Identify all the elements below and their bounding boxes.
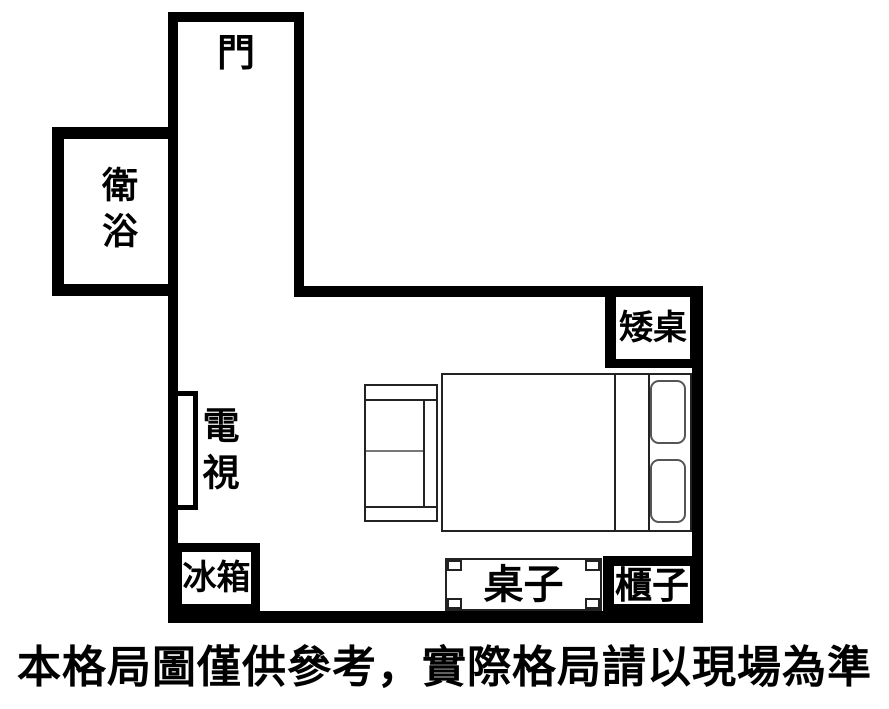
bed [441,373,692,532]
bathroom-room: 衛浴 [64,139,168,284]
sofa-cushion-divider [366,450,423,452]
tv [178,391,198,510]
bed-head-line-1 [614,375,616,530]
sofa [364,384,438,522]
door-label: 門 [178,34,294,72]
low-table-label: 矮桌 [619,311,687,345]
pillow-bottom [650,459,686,523]
wall-corridor-right [294,12,304,297]
table-leg-bottom-right [585,598,600,609]
pillow-top [650,380,686,444]
wall-bathroom-top [52,127,178,139]
floor-plan: 門 衛浴 矮桌 電視 冰箱 桌子 櫃子 本格局圖僅供參考，實 [0,0,889,709]
disclaimer-caption: 本格局圖僅供參考，實際格局請以現場為準 [0,646,889,690]
wall-corridor-top [168,12,304,22]
table-leg-top-left [447,560,462,571]
table: 桌子 [445,558,602,611]
cabinet-label: 櫃子 [615,567,689,604]
wall-bathroom-bottom [52,284,178,296]
wall-left [168,12,178,623]
cabinet-top: 櫃子 [614,566,690,604]
fridge-label: 冰箱 [183,561,251,595]
table-leg-bottom-left [447,598,462,609]
wall-bathroom-left [52,127,64,296]
fridge-top: 冰箱 [182,552,251,604]
low-table-top: 矮桌 [616,297,690,359]
sofa-armrest-bottom-line [366,506,436,508]
tv-label: 電視 [199,406,236,500]
sofa-back-line [423,399,425,508]
sofa-armrest-top-line [366,399,436,401]
bathroom-label: 衛浴 [98,166,134,258]
table-label: 桌子 [484,565,564,605]
table-leg-top-right [585,560,600,571]
